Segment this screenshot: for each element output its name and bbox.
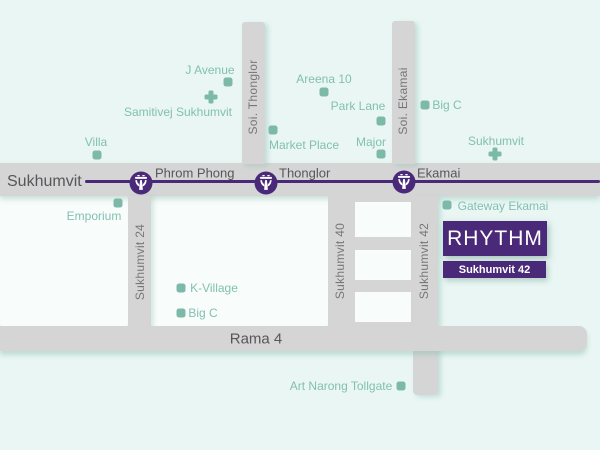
project-address-badge: Sukhumvit 42 bbox=[443, 261, 546, 278]
rama-4-road bbox=[0, 326, 587, 351]
poi-marker-icon-art-narong-tollgate bbox=[397, 382, 406, 391]
bts-station-icon-thonglor bbox=[255, 172, 278, 195]
poi-marker-icon-major bbox=[377, 150, 386, 159]
road-label-soi-thonglor: Soi. Thonglor bbox=[246, 59, 260, 134]
poi-marker-icon-big-c-rama4 bbox=[177, 309, 186, 318]
road-label-rama-4: Rama 4 bbox=[230, 331, 283, 348]
poi-marker-icon-areena-10 bbox=[320, 88, 329, 97]
poi-label-samitivej-sukhumvit: Samitivej Sukhumvit bbox=[124, 105, 232, 119]
poi-marker-icon-gateway-ekamai bbox=[443, 201, 452, 210]
road-label-sukhumvit: Sukhumvit bbox=[7, 173, 82, 191]
poi-label-j-avenue: J Avenue bbox=[185, 63, 234, 77]
poi-label-areena-10: Areena 10 bbox=[296, 72, 351, 86]
poi-label-sukhumvit-hospital: Sukhumvit bbox=[468, 134, 524, 148]
city-block bbox=[355, 292, 411, 322]
station-label-ekamai: Ekamai bbox=[417, 166, 460, 181]
road-label-soi-ekamai: Soi. Ekamai bbox=[396, 67, 410, 134]
bts-station-icon-phrom-phong bbox=[130, 172, 153, 195]
poi-marker-icon-villa bbox=[93, 151, 102, 160]
poi-label-villa: Villa bbox=[85, 135, 107, 149]
poi-label-major: Major bbox=[356, 135, 386, 149]
hospital-cross-icon-sukhumvit-hospital bbox=[489, 148, 502, 161]
hospital-cross-icon-samitivej-sukhumvit bbox=[205, 91, 218, 104]
city-block bbox=[355, 250, 411, 280]
poi-marker-icon-j-avenue bbox=[224, 78, 233, 87]
poi-label-market-place: Market Place bbox=[269, 138, 339, 152]
poi-label-big-c-ekamai: Big C bbox=[432, 98, 461, 112]
bts-station-icon-ekamai bbox=[393, 171, 416, 194]
poi-label-k-village: K-Village bbox=[190, 281, 238, 295]
project-logo-box: RHYTHM bbox=[443, 221, 547, 256]
poi-label-gateway-ekamai: Gateway Ekamai bbox=[458, 199, 549, 213]
road-label-sukhumvit-40: Sukhumvit 40 bbox=[333, 223, 347, 299]
city-block bbox=[151, 196, 328, 326]
poi-label-art-narong-tollgate: Art Narong Tollgate bbox=[290, 379, 393, 393]
poi-marker-icon-emporium bbox=[114, 199, 123, 208]
project-name: RHYTHM bbox=[447, 227, 543, 251]
road-label-sukhumvit-42: Sukhumvit 42 bbox=[417, 223, 431, 299]
poi-marker-icon-k-village bbox=[177, 284, 186, 293]
city-block bbox=[355, 202, 411, 237]
station-label-thonglor: Thonglor bbox=[279, 166, 330, 181]
poi-label-emporium: Emporium bbox=[67, 209, 122, 223]
poi-label-big-c-rama4: Big C bbox=[188, 306, 217, 320]
project-address: Sukhumvit 42 bbox=[459, 264, 531, 276]
poi-marker-icon-market-place bbox=[269, 126, 278, 135]
poi-marker-icon-big-c-ekamai bbox=[421, 101, 430, 110]
location-map: Sukhumvit Rama 4 Soi. ThonglorSoi. Ekama… bbox=[0, 0, 600, 450]
poi-label-park-lane: Park Lane bbox=[331, 99, 386, 113]
poi-marker-icon-park-lane bbox=[377, 117, 386, 126]
station-label-phrom-phong: Phrom Phong bbox=[155, 166, 235, 181]
road-label-sukhumvit-24: Sukhumvit 24 bbox=[133, 224, 147, 300]
